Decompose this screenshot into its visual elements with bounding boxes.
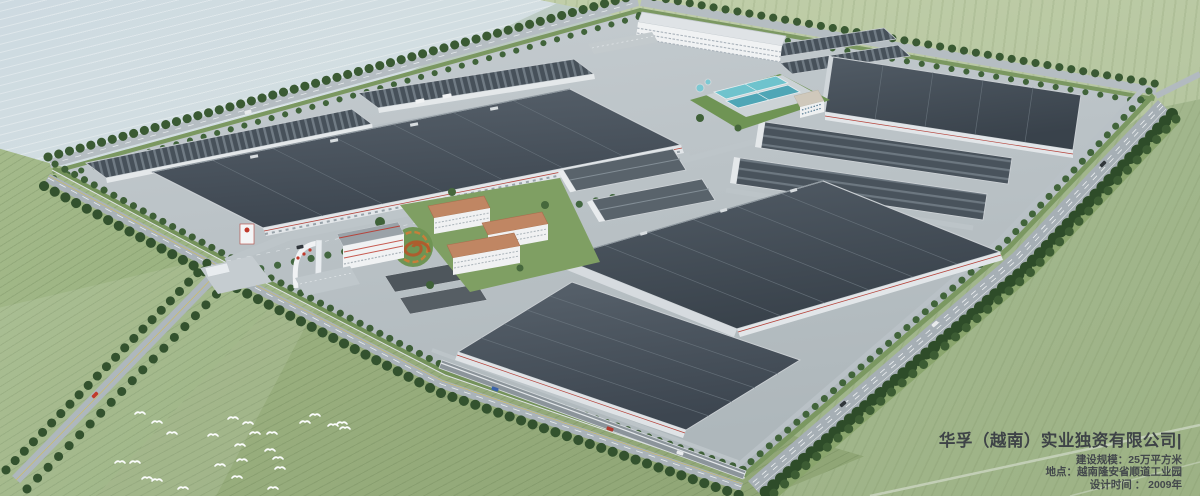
- project-caption: 华孚（越南）实业独资有限公司| 建设规模：25万平方米 地点：越南隆安省顺道工业…: [939, 427, 1182, 492]
- project-design-date: 设计时间 ： 2009年: [939, 479, 1182, 492]
- company-name: 华孚（越南）实业独资有限公司|: [939, 427, 1182, 451]
- company-signboard: [240, 224, 254, 244]
- scene-svg: [0, 0, 1200, 496]
- access-road: [12, 263, 227, 483]
- project-location: 地点：越南隆安省顺道工业园: [939, 466, 1182, 479]
- rendering-canvas: 华孚（越南）实业独资有限公司| 建设规模：25万平方米 地点：越南隆安省顺道工业…: [0, 0, 1200, 496]
- birds-flock: [115, 412, 350, 489]
- project-scale: 建设规模：25万平方米: [939, 454, 1182, 467]
